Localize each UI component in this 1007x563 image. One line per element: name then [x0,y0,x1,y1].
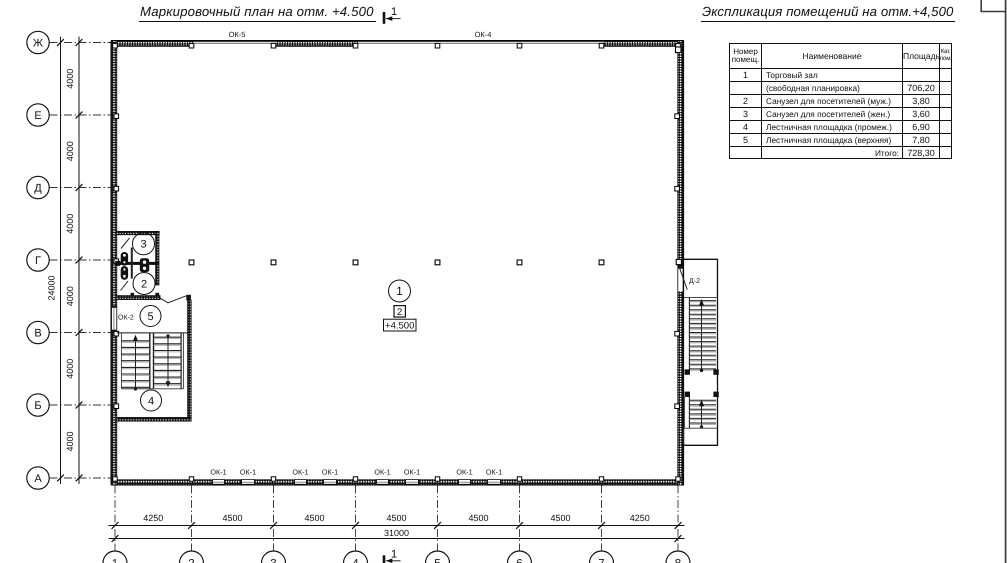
svg-text:4500: 4500 [550,513,570,523]
svg-text:ОК-5: ОК-5 [229,30,246,39]
svg-text:Е: Е [34,110,41,122]
svg-text:3: 3 [270,558,276,563]
svg-text:Б: Б [34,400,41,412]
svg-text:5: 5 [434,558,440,563]
svg-text:2: 2 [397,307,402,318]
svg-text:4000: 4000 [65,286,75,306]
svg-text:ОК-1: ОК-1 [210,468,226,477]
svg-text:4500: 4500 [386,513,406,523]
svg-text:ОК-1: ОК-1 [404,468,420,477]
svg-text:ОК-1: ОК-1 [322,468,338,477]
svg-text:ОК-1: ОК-1 [456,468,472,477]
svg-text:Д: Д [34,182,42,194]
svg-text:6: 6 [516,558,522,563]
svg-text:4000: 4000 [65,214,75,234]
svg-text:ОК-4: ОК-4 [475,30,492,39]
svg-text:4250: 4250 [630,513,650,523]
svg-text:Г: Г [35,255,41,267]
svg-text:А: А [34,473,42,485]
svg-text:1: 1 [112,558,118,563]
svg-text:2: 2 [141,278,147,290]
svg-text:31000: 31000 [384,528,409,538]
svg-text:В: В [34,327,41,339]
svg-text:1: 1 [391,549,397,561]
svg-text:Ж: Ж [33,37,43,49]
svg-text:4500: 4500 [304,513,324,523]
svg-text:4500: 4500 [468,513,488,523]
svg-text:8: 8 [675,558,681,563]
svg-text:4000: 4000 [65,431,75,451]
svg-text:ОК-1: ОК-1 [240,468,256,477]
svg-text:4000: 4000 [65,69,75,89]
svg-text:+4.500: +4.500 [385,320,414,331]
svg-text:ОК-1: ОК-1 [292,468,308,477]
svg-text:ОК-1: ОК-1 [486,468,502,477]
svg-text:Д-2: Д-2 [689,278,700,285]
svg-text:1: 1 [396,284,403,298]
svg-text:2: 2 [188,558,194,563]
svg-text:4: 4 [352,558,359,563]
svg-text:1: 1 [391,6,397,18]
svg-text:ОК-2: ОК-2 [118,315,134,322]
svg-text:24000: 24000 [47,275,57,300]
svg-text:4500: 4500 [222,513,242,523]
svg-text:4000: 4000 [65,359,75,379]
svg-text:4000: 4000 [65,141,75,161]
svg-text:3: 3 [140,239,146,251]
svg-text:4250: 4250 [143,513,163,523]
svg-text:7: 7 [598,558,604,563]
svg-text:ОК-1: ОК-1 [374,468,390,477]
svg-text:5: 5 [147,311,153,323]
svg-text:4: 4 [148,395,154,407]
